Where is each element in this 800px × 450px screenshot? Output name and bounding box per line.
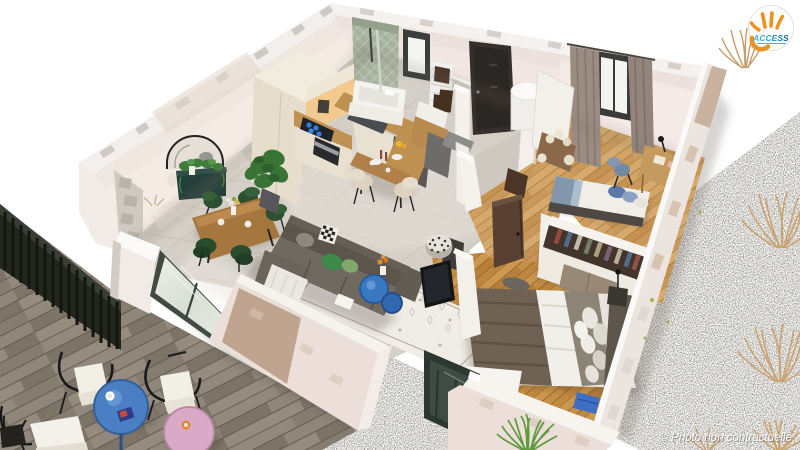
svg-text:ACCESS: ACCESS bbox=[752, 33, 789, 43]
svg-text:© Photo non contractuelle: © Photo non contractuelle bbox=[659, 432, 792, 444]
